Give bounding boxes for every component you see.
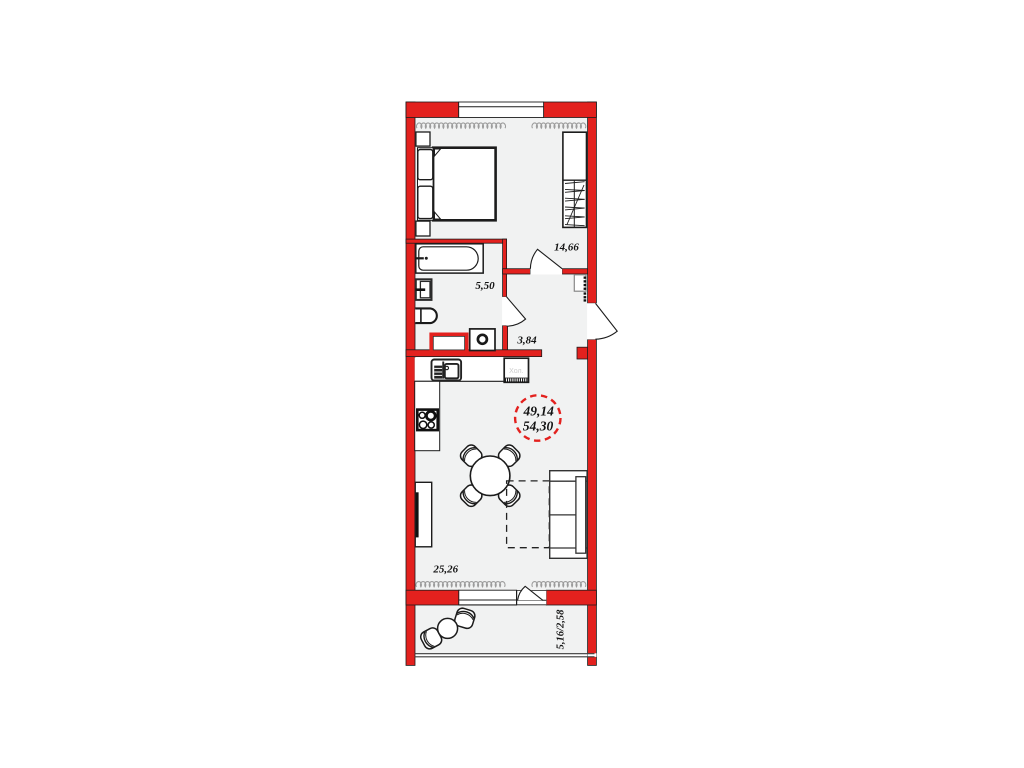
svg-text:5,16/2,58: 5,16/2,58 [556,609,567,649]
svg-text:5,50: 5,50 [475,280,495,292]
svg-text:49,14: 49,14 [523,404,555,419]
svg-text:Хол.: Хол. [509,368,523,375]
svg-text:25,26: 25,26 [432,563,458,575]
svg-text:14,66: 14,66 [554,241,579,253]
svg-text:54,30: 54,30 [523,419,554,434]
svg-text:3,84: 3,84 [516,335,537,347]
